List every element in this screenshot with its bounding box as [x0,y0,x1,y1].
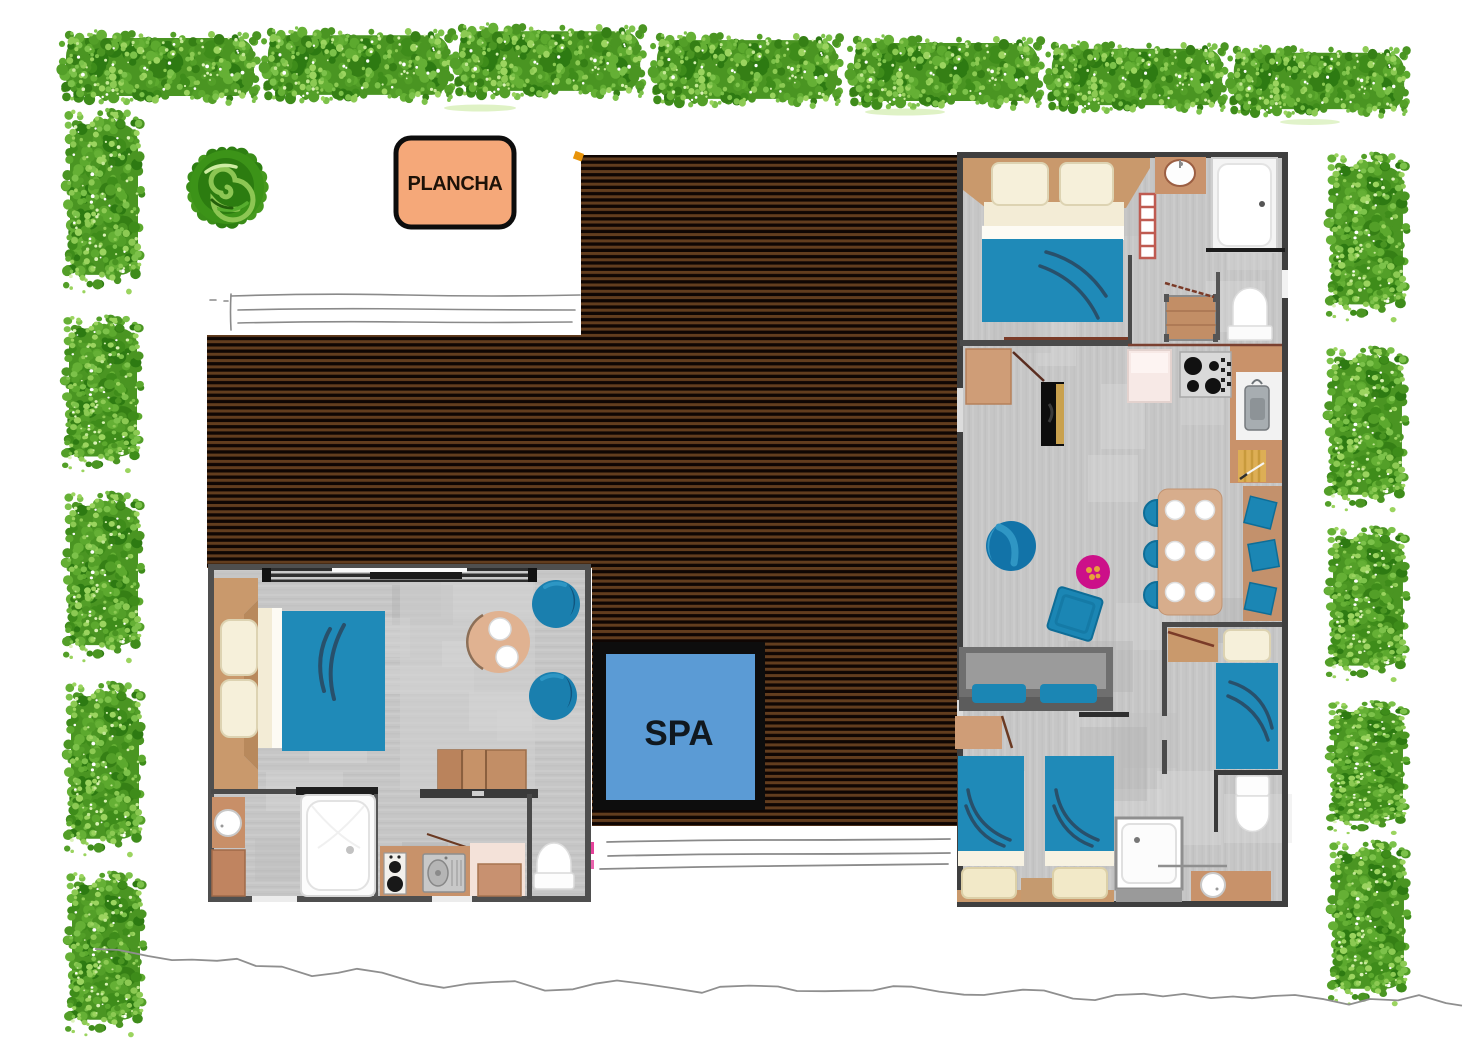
svg-text:SPA: SPA [644,714,713,753]
svg-text:PLANCHA: PLANCHA [408,173,503,195]
